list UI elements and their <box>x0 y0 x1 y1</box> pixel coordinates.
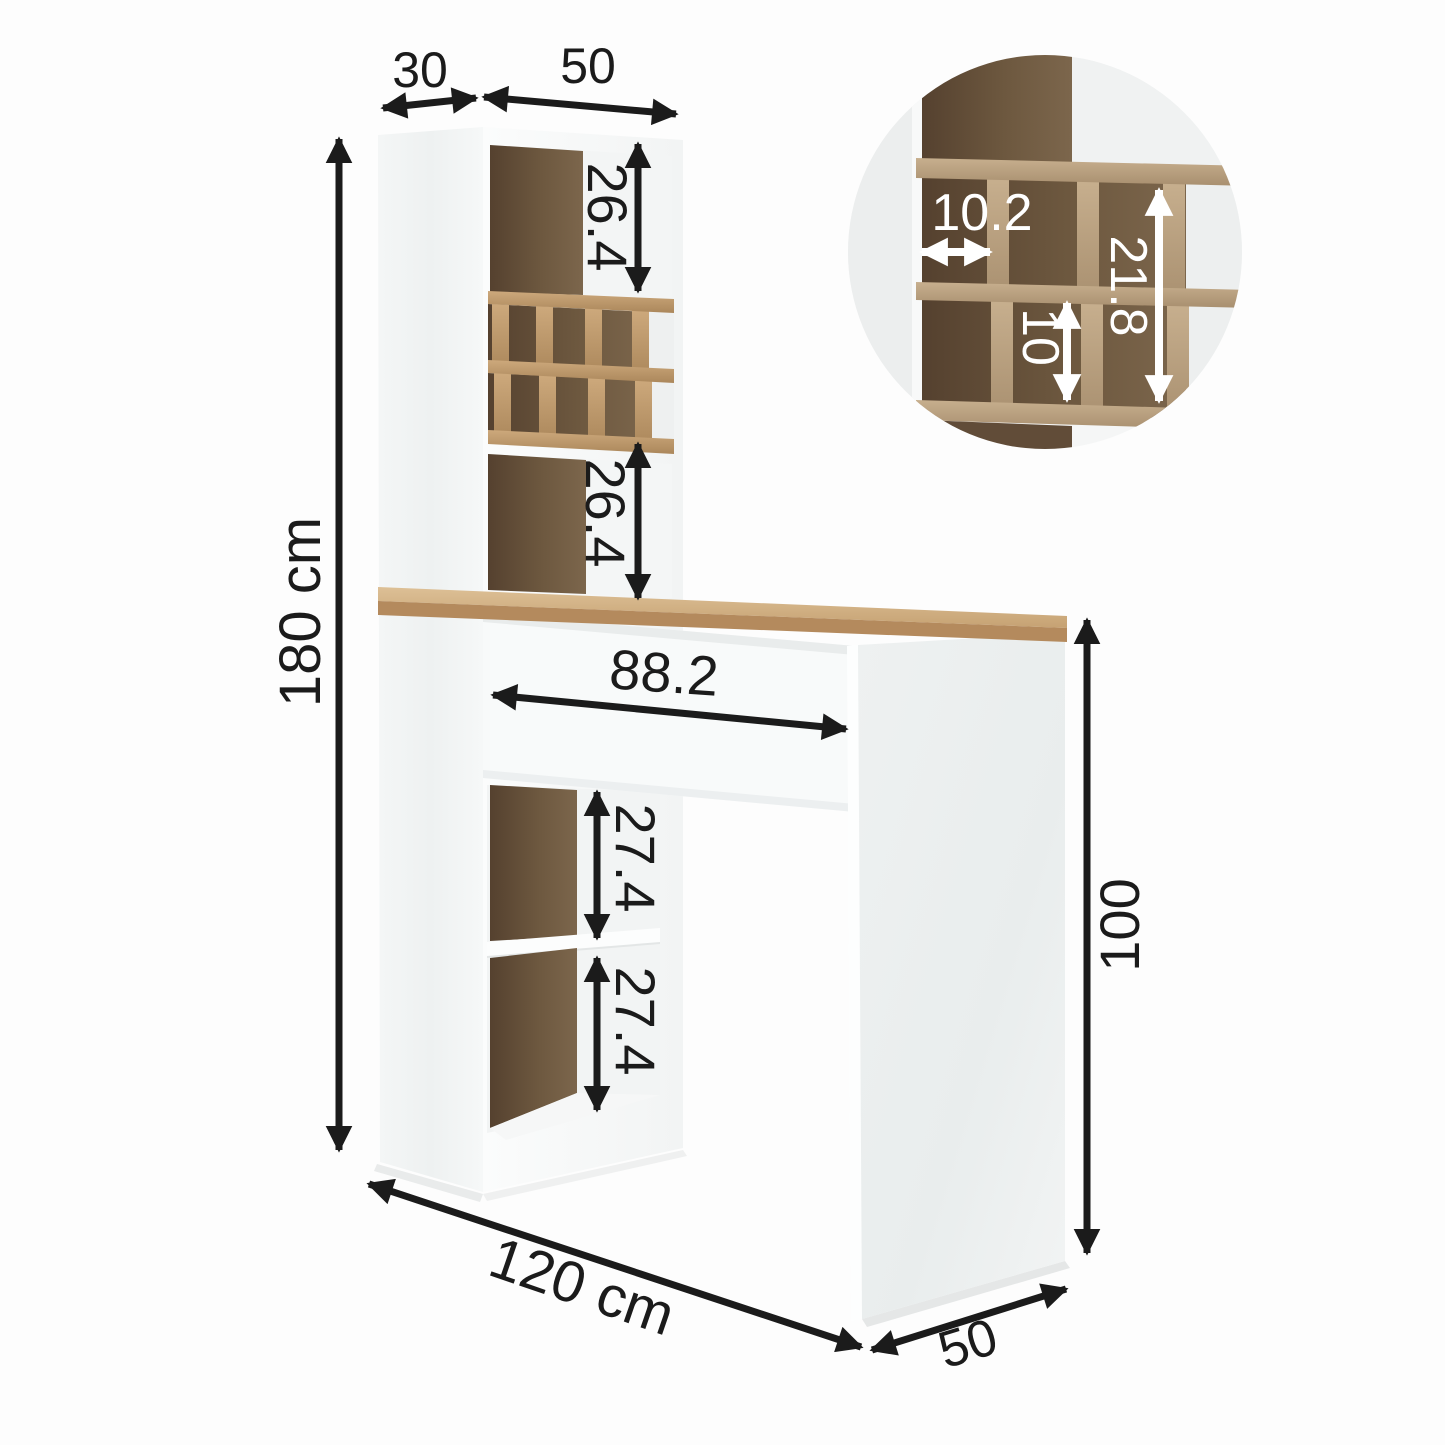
dim-mid-opening: 26.4 <box>577 459 633 568</box>
table-leg <box>847 633 1070 1327</box>
dim-table-height: 100 <box>1092 878 1148 971</box>
furniture-illustration <box>0 0 1445 1445</box>
dim-inset-column-height: 21.8 <box>1102 235 1154 336</box>
furniture-dimension-diagram: 30 50 180 cm 26.4 26.4 88.2 27.4 27.4 10… <box>0 0 1445 1445</box>
dim-upper-opening: 26.4 <box>579 163 635 272</box>
detail-inset <box>845 55 1250 455</box>
dim-total-height: 180 cm <box>272 517 330 707</box>
dim-cabinet-depth: 30 <box>392 45 448 95</box>
dim-shelf-top: 27.4 <box>607 804 663 913</box>
dim-worktop-width: 88.2 <box>608 641 721 704</box>
dim-cabinet-width: 50 <box>560 41 616 91</box>
dim-inset-cubby-width: 10.2 <box>931 187 1032 239</box>
dim-shelf-bottom: 27.4 <box>607 967 663 1076</box>
dim-inset-cubby-height: 10 <box>1014 308 1066 366</box>
